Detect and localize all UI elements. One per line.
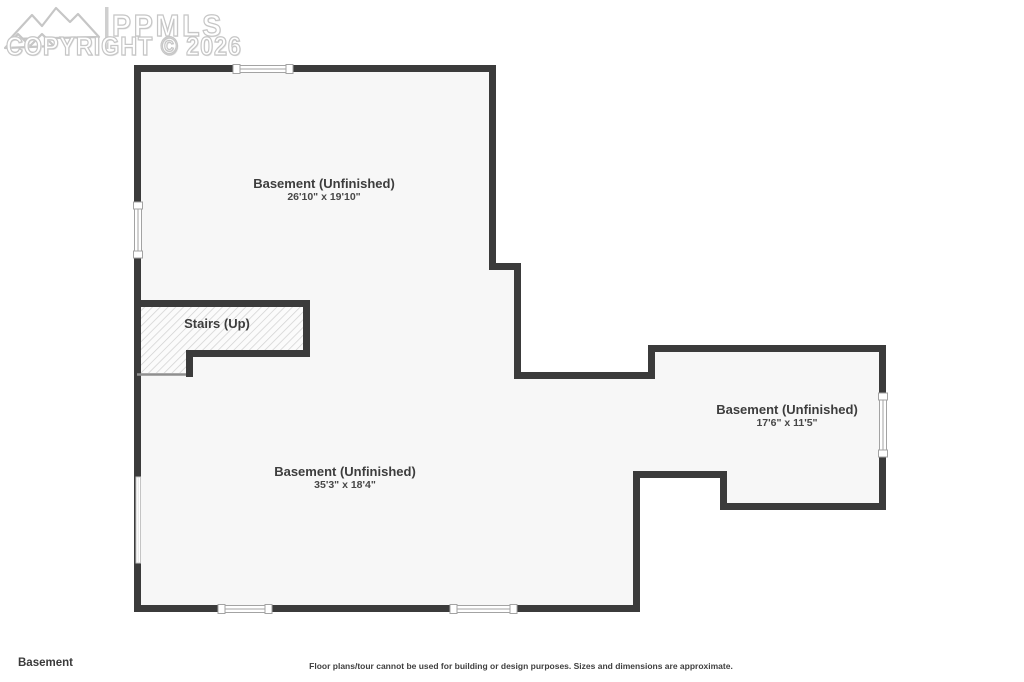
stairs-label: Stairs (Up) bbox=[184, 317, 250, 331]
room-dimensions: 35'3" x 18'4" bbox=[274, 479, 416, 492]
window-top bbox=[233, 65, 293, 74]
floor-label: Basement bbox=[18, 657, 73, 669]
window-left-lower bbox=[136, 477, 141, 563]
room-name: Basement (Unfinished) bbox=[274, 465, 416, 479]
room-label-basement-right: Basement (Unfinished) 17'6" x 11'5" bbox=[716, 403, 858, 430]
floor-plan-canvas bbox=[0, 0, 1024, 682]
window-bottom-1 bbox=[218, 605, 272, 614]
room-dimensions: 17'6" x 11'5" bbox=[716, 417, 858, 430]
floor-plan-page: PPMLS COPYRIGHT © 2026 Basement (Unfinis… bbox=[0, 0, 1024, 682]
window-bottom-2 bbox=[450, 605, 517, 614]
room-name: Basement (Unfinished) bbox=[253, 177, 395, 191]
room-label-basement-upper: Basement (Unfinished) 26'10" x 19'10" bbox=[253, 177, 395, 204]
room-dimensions: 26'10" x 19'10" bbox=[253, 191, 395, 204]
room-label-basement-lower: Basement (Unfinished) 35'3" x 18'4" bbox=[274, 465, 416, 492]
room-name: Basement (Unfinished) bbox=[716, 403, 858, 417]
watermark-copyright: COPYRIGHT © 2026 bbox=[6, 31, 242, 62]
window-left-upper bbox=[134, 202, 143, 258]
window-right bbox=[879, 393, 888, 457]
disclaimer-text: Floor plans/tour cannot be used for buil… bbox=[309, 661, 733, 671]
